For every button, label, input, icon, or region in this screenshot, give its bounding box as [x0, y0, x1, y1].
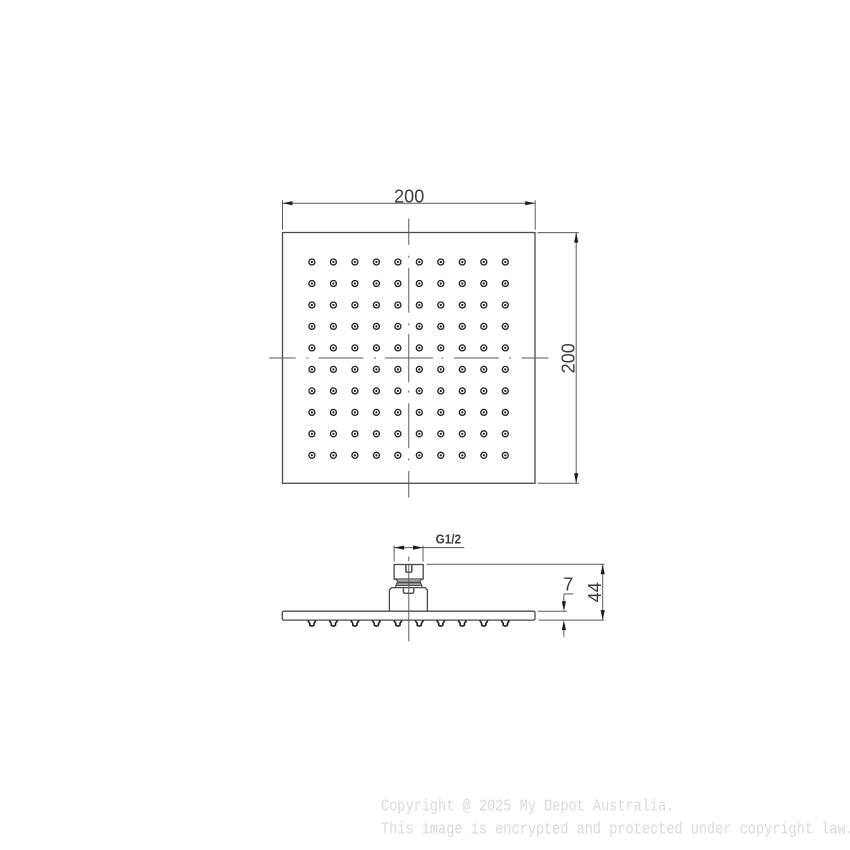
svg-text:7: 7 [563, 575, 573, 595]
svg-text:200: 200 [558, 343, 578, 373]
svg-text:Copyright @ 2025 My Depot Aust: Copyright @ 2025 My Depot Australia. [381, 796, 674, 816]
svg-text:G1/2: G1/2 [436, 532, 461, 547]
svg-text:44: 44 [585, 582, 605, 602]
svg-text:200: 200 [394, 187, 424, 207]
svg-text:This image is encrypted and pr: This image is encrypted and protected un… [381, 819, 850, 839]
